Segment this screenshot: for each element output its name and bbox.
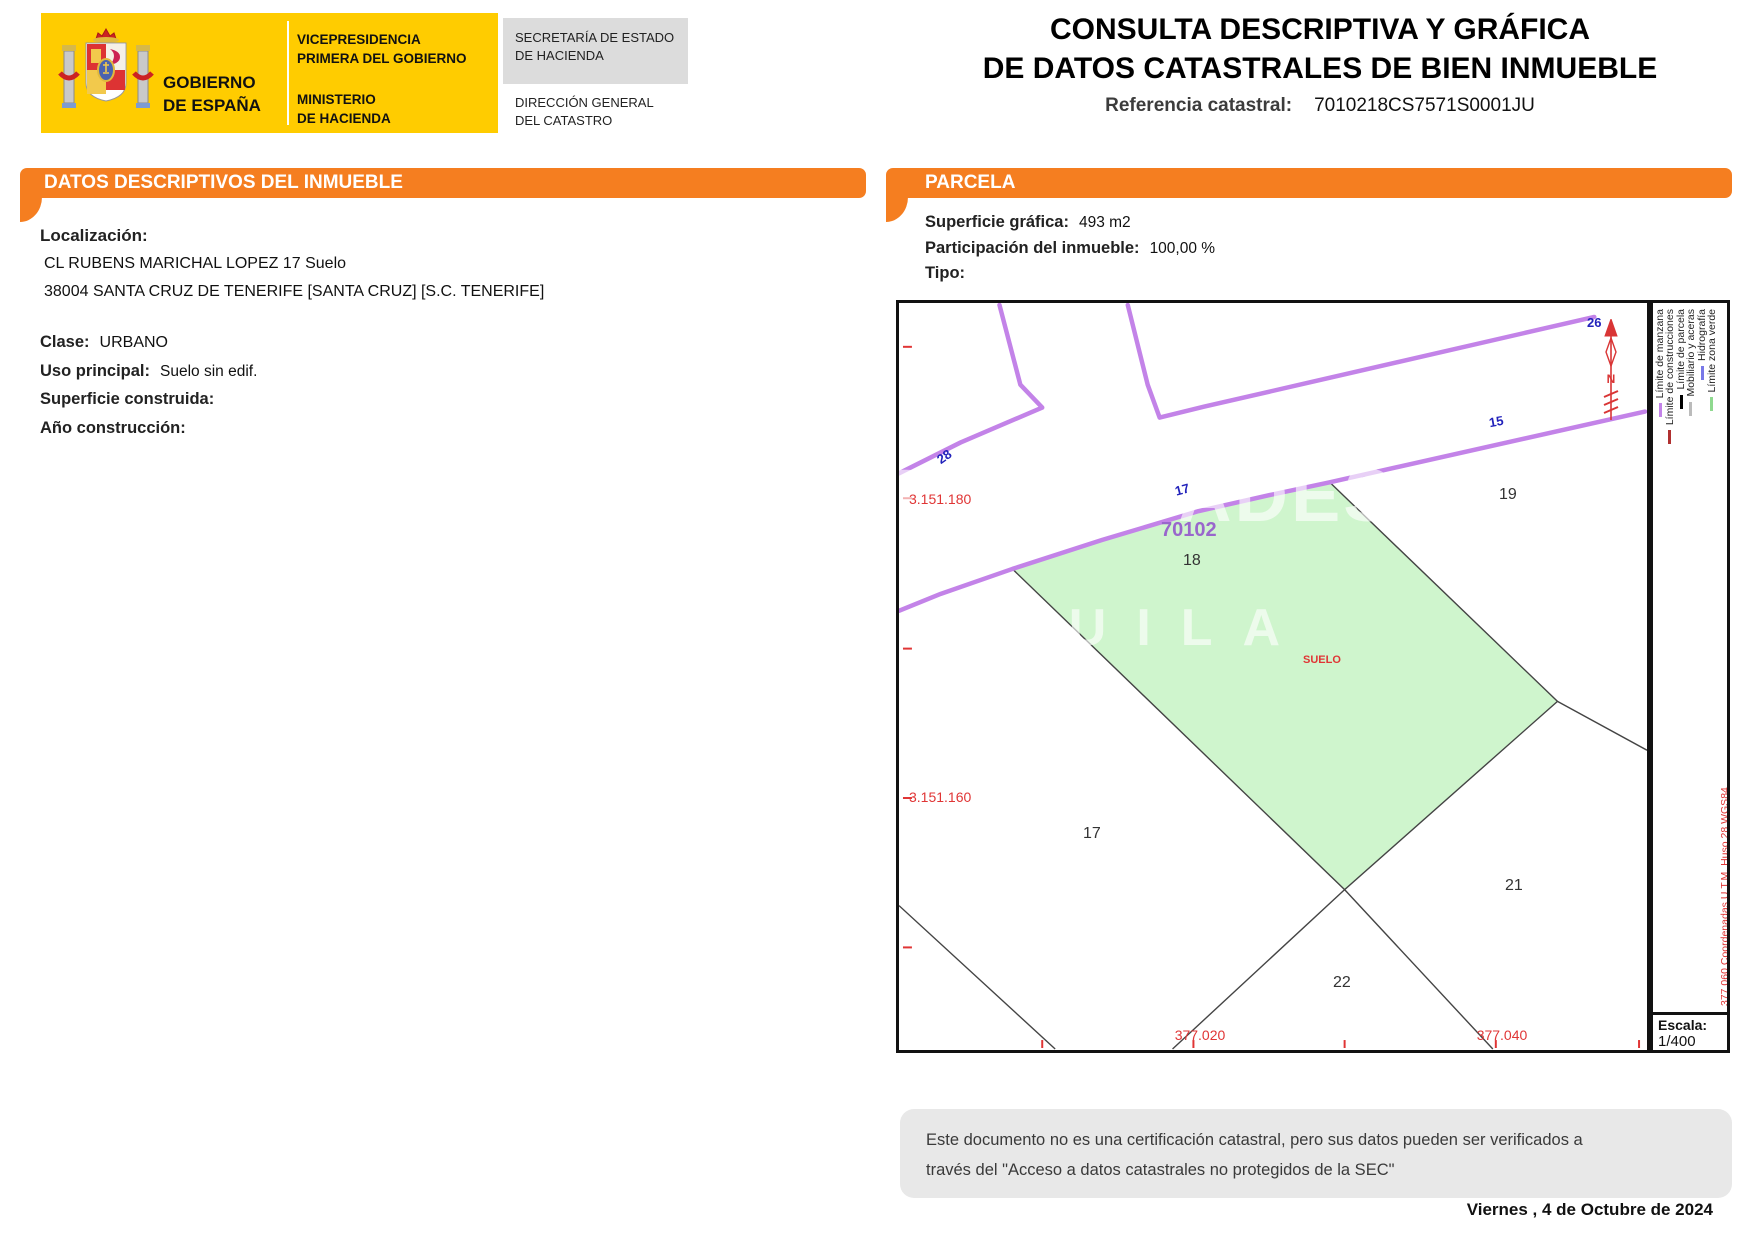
ministerio-label: MINISTERIO DE HACIENDA [297, 90, 391, 128]
legend-item: Hidrografía [1698, 303, 1708, 1010]
uso-principal-row: Uso principal: Suelo sin edif. [40, 362, 257, 381]
legend-swatch-manzana [1659, 403, 1662, 417]
legend-swatch-zona-verde [1710, 397, 1713, 411]
superficie-grafica-label: Superficie gráfica: [925, 213, 1069, 232]
legend-swatch-parcela [1680, 395, 1683, 409]
parcel-number-21: 21 [1505, 877, 1523, 895]
document-title: CONSULTA DESCRIPTIVA Y GRÁFICA DE DATOS … [960, 10, 1680, 117]
vicepresidencia-label: VICEPRESIDENCIA PRIMERA DEL GOBIERNO [297, 30, 467, 68]
legend-swatch-construcciones [1668, 430, 1671, 444]
title-line-1: CONSULTA DESCRIPTIVA Y GRÁFICA [960, 10, 1680, 49]
cadastral-reference-value: 7010218CS7571S0001JU [1314, 95, 1535, 116]
utm-y-label-2: 3.151.160 [909, 789, 971, 805]
cadastral-map-drawing [899, 303, 1647, 1050]
parcel-number-17: 17 [1083, 825, 1101, 843]
document-date: Viernes , 4 de Octubre de 2024 [1200, 1200, 1713, 1220]
legend-swatch-hidrografia [1701, 366, 1704, 380]
localizacion-label: Localización: [40, 226, 148, 246]
utm-y-label-1: 3.151.180 [909, 491, 971, 507]
tipo-row: Tipo: [925, 264, 975, 283]
legend-item: Límite de construcciones [1666, 303, 1676, 1010]
uso-principal-value: Suelo sin edif. [160, 363, 257, 381]
superficie-construida-row: Superficie construida: [40, 390, 224, 409]
parcel-number-19: 19 [1499, 486, 1517, 504]
section-header-tail [20, 197, 42, 222]
legend-item: Mobiliario y aceras [1687, 303, 1697, 1010]
direccion-general-label: DIRECCIÓN GENERAL DEL CATASTRO [515, 94, 654, 130]
disclaimer-line-1: Este documento no es una certificación c… [926, 1125, 1732, 1155]
tipo-label: Tipo: [925, 264, 965, 283]
cadastral-reference-label: Referencia catastral: [1105, 95, 1292, 116]
section-header-parcela-tail [886, 197, 908, 222]
superficie-construida-label: Superficie construida: [40, 390, 214, 409]
clase-row: Clase: URBANO [40, 333, 168, 352]
parcel-number-22: 22 [1333, 974, 1351, 992]
address-line-2: 38004 SANTA CRUZ DE TENERIFE [SANTA CRUZ… [44, 283, 544, 301]
section-header-parcela: PARCELA [886, 168, 1732, 198]
legend-swatch-aceras [1689, 402, 1692, 416]
utm-x-label-2: 377.040 [1467, 1027, 1537, 1043]
svg-text:N: N [1607, 372, 1616, 386]
scale-label: Escala: [1658, 1017, 1727, 1033]
government-logo-block: GOBIERNO DE ESPAÑA VICEPRESIDENCIA PRIME… [41, 13, 498, 133]
clase-value: URBANO [100, 334, 168, 352]
utm-x-label-1: 377.020 [1165, 1027, 1235, 1043]
north-arrow-icon: N [1599, 319, 1623, 425]
superficie-grafica-value: 493 m2 [1079, 214, 1131, 232]
parcel-number-18: 18 [1183, 552, 1201, 570]
disclaimer-line-2: través del "Acceso a datos catastrales n… [926, 1155, 1732, 1185]
secretaria-estado-box: SECRETARÍA DE ESTADO DE HACIENDA [503, 18, 688, 84]
secretaria-estado-label: SECRETARÍA DE ESTADO DE HACIENDA [515, 29, 674, 65]
participacion-label: Participación del inmueble: [925, 239, 1140, 258]
logo-divider [287, 21, 289, 125]
uso-principal-label: Uso principal: [40, 362, 150, 381]
ano-construccion-row: Año construcción: [40, 419, 196, 438]
land-use-label: SUELO [1303, 654, 1341, 666]
cadastral-map: PROPIEDADES ALQUILA 28 17 15 26 19 18 17… [896, 300, 1650, 1053]
ano-construccion-label: Año construcción: [40, 419, 186, 438]
manzana-number: 70102 [1161, 519, 1217, 542]
watermark-line-2: ALQUILA [896, 598, 1310, 658]
spain-coat-of-arms-icon [58, 25, 154, 121]
clase-label: Clase: [40, 333, 90, 352]
superficie-grafica-row: Superficie gráfica: 493 m2 [925, 213, 1131, 232]
section-header-datos-descriptivos: DATOS DESCRIPTIVOS DEL INMUEBLE [20, 168, 866, 198]
participacion-value: 100,00 % [1150, 240, 1216, 258]
scale-box: Escala: 1/400 [1650, 1012, 1730, 1053]
map-legend-strip: Límite de manzana Límite de construccion… [1650, 300, 1730, 1015]
address-line-1: CL RUBENS MARICHAL LOPEZ 17 Suelo [44, 255, 346, 273]
utm-coords-note: 377.060 Coordenadas U.T.M. Huso 28 WGS84 [1720, 303, 1730, 1010]
scale-value: 1/400 [1658, 1033, 1727, 1050]
title-line-2: DE DATOS CATASTRALES DE BIEN INMUEBLE [960, 49, 1680, 88]
legend-item: Límite zona verde [1708, 303, 1718, 1010]
street-number-15: 15 [1488, 413, 1505, 430]
participacion-row: Participación del inmueble: 100,00 % [925, 239, 1215, 258]
cadastral-reference: Referencia catastral:7010218CS7571S0001J… [960, 95, 1680, 117]
legend-item: Límite de parcela [1677, 303, 1687, 1010]
gobierno-espana-label: GOBIERNO DE ESPAÑA [163, 71, 261, 117]
disclaimer-box: Este documento no es una certificación c… [900, 1109, 1732, 1198]
